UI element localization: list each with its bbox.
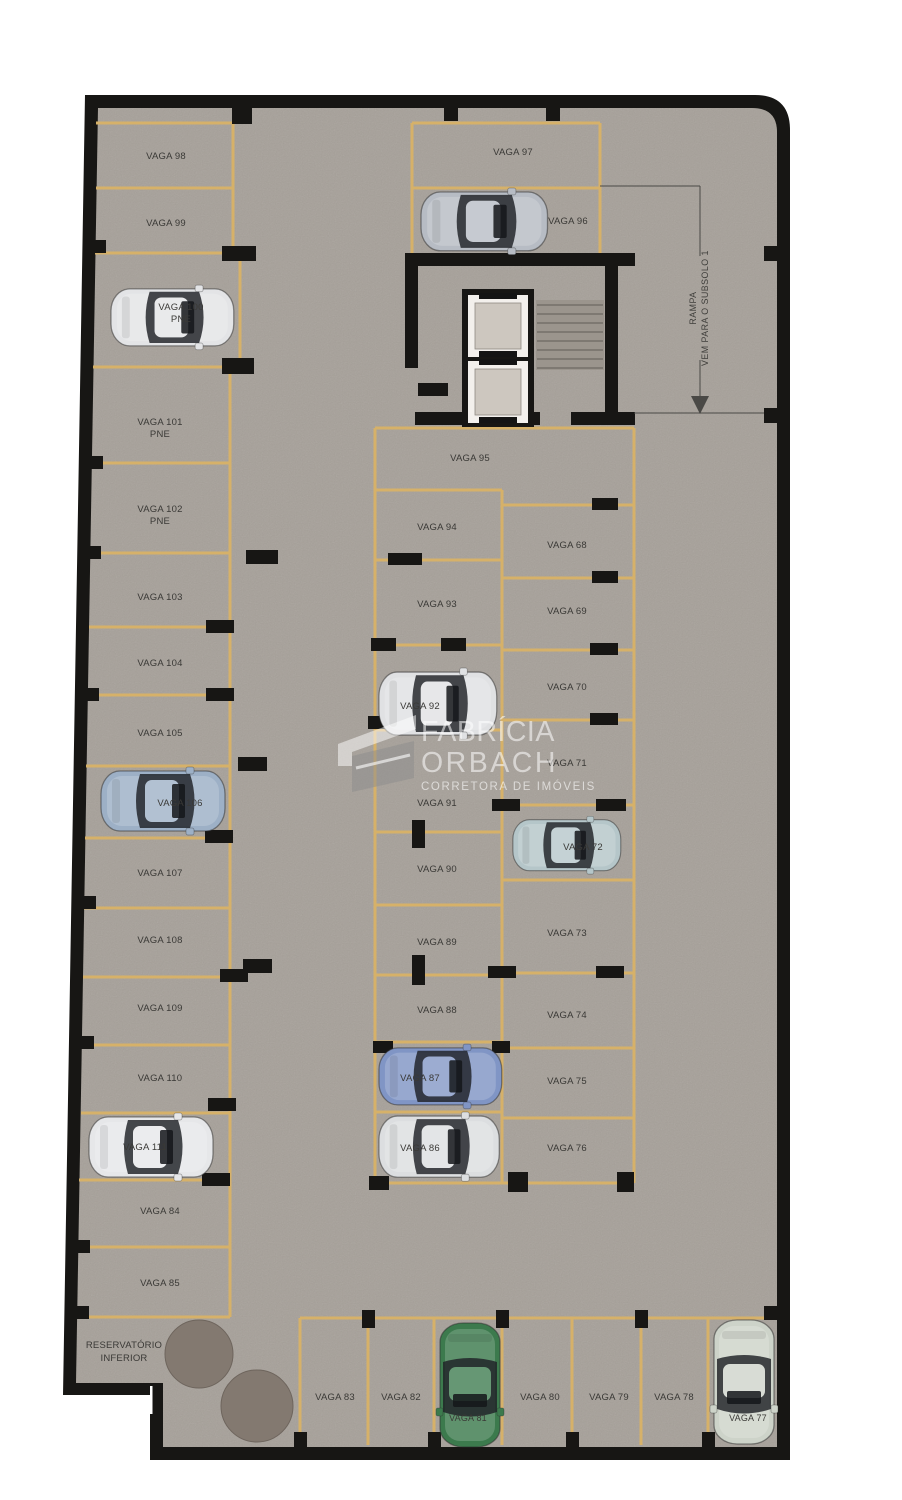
spot-label-vaga-76: VAGA 76 xyxy=(547,1143,587,1154)
watermark-line3: CORRETORA DE IMÓVEIS xyxy=(421,780,596,793)
spot-label-vaga-72: VAGA 72 xyxy=(563,842,603,853)
car-vaga-87 xyxy=(379,1044,502,1109)
spot-label-vaga-84: VAGA 84 xyxy=(140,1206,180,1217)
ramp-label-line1: RAMPA xyxy=(688,291,698,324)
spot-label-vaga-77: VAGA 77 xyxy=(729,1413,767,1423)
spot-label-vaga-100: VAGA 100 xyxy=(158,302,203,313)
spot-label-vaga-80: VAGA 80 xyxy=(520,1392,560,1403)
spot-label-vaga-99: VAGA 99 xyxy=(146,218,186,229)
spot-label-vaga-102-pne: PNE xyxy=(150,516,170,527)
spot-label-vaga-82: VAGA 82 xyxy=(381,1392,421,1403)
spot-label-vaga-74: VAGA 74 xyxy=(547,1010,587,1021)
car-vaga-77 xyxy=(710,1320,778,1444)
core-wall-right xyxy=(605,253,618,425)
spot-label-vaga-78: VAGA 78 xyxy=(654,1392,694,1403)
spot-label-vaga-101: VAGA 101 xyxy=(137,417,182,428)
drain-pipe-mark xyxy=(150,1386,153,1414)
spot-label-vaga-110: VAGA 110 xyxy=(138,1073,183,1084)
floor-plan-page: RAMPA VEM PARA O SUBSOLO 1 VAGA 98 VAGA … xyxy=(0,0,902,1500)
car-vaga-96 xyxy=(421,188,547,255)
water-tank-2 xyxy=(221,1370,293,1442)
spot-label-vaga-91: VAGA 91 xyxy=(417,798,457,809)
spot-label-vaga-92: VAGA 92 xyxy=(400,701,440,712)
spot-label-vaga-70: VAGA 70 xyxy=(547,682,587,693)
spot-label-vaga-98: VAGA 98 xyxy=(146,151,186,162)
staircase xyxy=(536,300,604,370)
spot-label-vaga-109: VAGA 109 xyxy=(137,1003,182,1014)
core-wall-top xyxy=(405,253,635,266)
floor-plan-drawing: RAMPA VEM PARA O SUBSOLO 1 VAGA 98 VAGA … xyxy=(0,0,902,1500)
reservoir-label-line1: RESERVATÓRIO xyxy=(86,1340,162,1351)
spot-label-vaga-102: VAGA 102 xyxy=(137,504,182,515)
elevator-cab-2 xyxy=(468,359,528,423)
watermark-line1: FABRÍCIA xyxy=(421,716,555,748)
spot-label-vaga-100-pne: PNE xyxy=(171,314,191,325)
spot-label-vaga-89: VAGA 89 xyxy=(417,937,457,948)
water-tank-1 xyxy=(165,1320,233,1388)
core-wall-stub xyxy=(418,383,448,396)
spot-label-vaga-108: VAGA 108 xyxy=(137,935,182,946)
spot-label-vaga-107: VAGA 107 xyxy=(137,868,182,879)
spot-label-vaga-103: VAGA 103 xyxy=(137,592,182,603)
spot-label-vaga-104: VAGA 104 xyxy=(137,658,182,669)
spot-label-vaga-79: VAGA 79 xyxy=(589,1392,629,1403)
spot-label-vaga-105: VAGA 105 xyxy=(137,728,182,739)
reservoir-label-line2: INFERIOR xyxy=(101,1353,148,1364)
watermark-line2: ORBACH xyxy=(421,747,558,779)
spot-label-vaga-88: VAGA 88 xyxy=(417,1005,457,1016)
spot-label-vaga-75: VAGA 75 xyxy=(547,1076,587,1087)
spot-label-vaga-96: VAGA 96 xyxy=(548,216,588,227)
spot-label-vaga-87: VAGA 87 xyxy=(400,1073,440,1084)
core-wall-left xyxy=(405,253,418,368)
elevator-cab-1 xyxy=(468,293,528,357)
spot-label-vaga-93: VAGA 93 xyxy=(417,599,457,610)
spot-label-vaga-106: VAGA 106 xyxy=(157,798,202,809)
spot-label-vaga-101-pne: PNE xyxy=(150,429,170,440)
spot-label-vaga-69: VAGA 69 xyxy=(547,606,587,617)
spot-label-vaga-95: VAGA 95 xyxy=(450,453,490,464)
spot-label-vaga-90: VAGA 90 xyxy=(417,864,457,875)
core-wall-bottom-right xyxy=(571,412,635,425)
spot-label-vaga-68: VAGA 68 xyxy=(547,540,587,551)
spot-label-vaga-86: VAGA 86 xyxy=(400,1143,440,1154)
spot-label-vaga-111: VAGA 111 xyxy=(123,1142,167,1153)
spot-label-vaga-97: VAGA 97 xyxy=(493,147,533,158)
spot-label-vaga-81: VAGA 81 xyxy=(449,1413,487,1423)
ramp-label-line2: VEM PARA O SUBSOLO 1 xyxy=(700,250,710,366)
spot-label-vaga-85: VAGA 85 xyxy=(140,1278,180,1289)
spot-label-vaga-73: VAGA 73 xyxy=(547,928,587,939)
car-vaga-81 xyxy=(436,1323,504,1447)
spot-label-vaga-94: VAGA 94 xyxy=(417,522,457,533)
spot-label-vaga-83: VAGA 83 xyxy=(315,1392,355,1403)
